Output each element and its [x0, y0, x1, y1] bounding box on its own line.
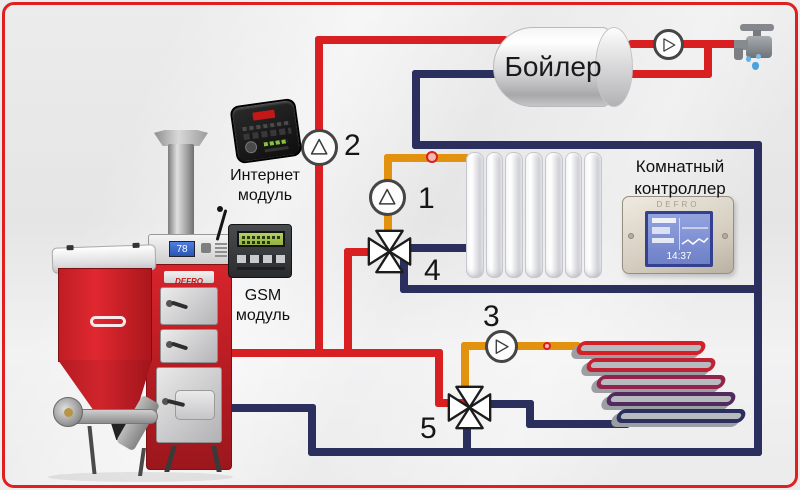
water-drops-icon [744, 54, 768, 72]
room-controller-device: DEFRO 14:37 [622, 196, 734, 274]
hopper-body [58, 268, 152, 362]
radiator-pump-icon [369, 179, 406, 216]
gsm-module-device [228, 224, 292, 278]
hot-pipe [628, 70, 712, 78]
gsm-module-label-line1: GSM [245, 287, 281, 304]
boiler-door [160, 287, 218, 325]
marker-tank-pump: 2 [344, 129, 361, 163]
heating-system-diagram: Бойлер [0, 0, 800, 490]
radiator-section [584, 152, 602, 278]
radiator-section [565, 152, 583, 278]
auger-motor [53, 397, 83, 427]
tank-pump-icon [301, 129, 338, 166]
floor-coil-row [585, 358, 718, 372]
floor-pump-icon [485, 330, 518, 363]
return-pipe [412, 141, 762, 149]
internet-module-label-line1: Интернет [230, 167, 300, 184]
room-controller-label: Комнатный контроллер [613, 156, 747, 200]
radiator-section [486, 152, 504, 278]
hot-pipe [704, 44, 712, 78]
radiator-section [545, 152, 563, 278]
boiler-door [160, 329, 218, 363]
dhw-recirculation-pump-icon [653, 29, 684, 60]
pipe-sensor-icon [426, 151, 438, 163]
dhw-tank: Бойлер [493, 27, 633, 107]
hopper-handle [90, 316, 126, 327]
screw-icon [628, 233, 634, 239]
feeder-leg [87, 426, 96, 474]
mixed-pipe [461, 342, 581, 350]
internet-module-label: Интернет модуль [223, 166, 307, 207]
internet-module-device [229, 98, 302, 165]
marker-radiator-pump: 1 [418, 182, 435, 216]
room-controller-graph [681, 220, 709, 250]
radiator-mixing-valve-icon [366, 228, 413, 275]
internet-module-led-strip [264, 139, 288, 146]
gsm-lcd [237, 231, 285, 247]
internet-module-label-line2: модуль [238, 187, 292, 204]
radiator-section [525, 152, 543, 278]
return-pipe [308, 448, 762, 456]
marker-radiator-valve: 4 [424, 254, 441, 288]
marker-floor-valve: 5 [420, 412, 437, 446]
return-pipe [526, 420, 630, 428]
gsm-module-label: GSM модуль [223, 286, 303, 327]
boiler-brand-plate: DEFRO [164, 271, 214, 283]
gsm-module-label-line2: модуль [236, 307, 290, 324]
floor-coil-row [595, 375, 728, 389]
marker-floor-pump: 3 [483, 300, 500, 334]
floor-mixing-valve-icon [446, 384, 493, 431]
floor-coil-row [605, 392, 738, 406]
control-button [201, 243, 211, 253]
boiler-brand: DEFRO [175, 277, 203, 286]
hot-pipe [215, 349, 443, 357]
room-controller-screen-value: 14:37 [648, 251, 710, 262]
return-pipe [754, 141, 762, 456]
room-controller-label-line1: Комнатный [636, 157, 724, 176]
room-controller-brand: DEFRO [623, 200, 733, 209]
floor-coil-row [615, 409, 748, 423]
floor-coil-row [575, 341, 708, 355]
return-pipe [412, 70, 420, 149]
internet-module-badge [252, 110, 275, 121]
dhw-tank-label: Бойлер [493, 51, 613, 83]
return-pipe [412, 70, 500, 78]
chimney [168, 144, 194, 248]
room-controller-screen: 14:37 [645, 211, 713, 267]
boiler-display: 78 [169, 241, 195, 257]
radiator [466, 152, 602, 278]
radiator-section [466, 152, 484, 278]
radiator-section [505, 152, 523, 278]
screw-icon [722, 233, 728, 239]
boiler-door [156, 367, 222, 443]
pipe-sensor-icon [543, 342, 551, 350]
hot-pipe [315, 36, 508, 44]
hot-pipe [344, 248, 352, 355]
hot-pipe [315, 36, 323, 357]
pellet-boiler: 78 DEFRO [48, 130, 233, 482]
room-controller-label-line2: контроллер [634, 179, 726, 198]
return-pipe [400, 285, 762, 293]
